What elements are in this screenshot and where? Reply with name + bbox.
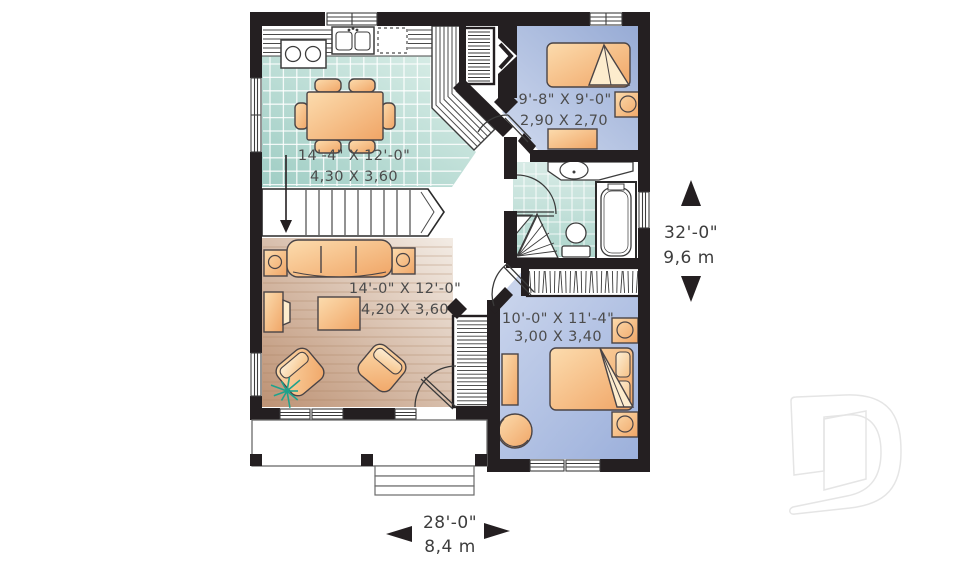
dining-chair (382, 103, 395, 129)
bedroom-1-size-metric: 2,90 X 2,70 (520, 113, 608, 129)
dining-chair (349, 79, 375, 92)
living-room-size-metric: 4,20 X 3,60 (361, 302, 449, 318)
window (639, 192, 649, 228)
depth-dimension: 32'-0" 9,6 m (663, 180, 718, 302)
dresser (502, 354, 518, 405)
porch-post (475, 454, 487, 466)
dining-chair (315, 79, 341, 92)
nightstand (612, 318, 638, 343)
arrow-right-icon (484, 523, 510, 539)
width-dimension: 28'-0" 8,4 m (386, 513, 510, 557)
living-room-size-imperial: 14'-0" X 12'-0" (349, 281, 461, 297)
floor-plan-svg: 14'-4" X 12'-0" 4,30 X 3,60 14'-0" X 12'… (0, 0, 960, 569)
arrow-down-icon (681, 276, 701, 302)
sofa (287, 240, 392, 277)
floor-plan-page: 14'-4" X 12'-0" 4,30 X 3,60 14'-0" X 12'… (0, 0, 960, 569)
closet-hatch (468, 32, 490, 81)
dresser (548, 129, 597, 149)
pillow (616, 352, 630, 377)
vanity-sink (560, 161, 588, 179)
bed (550, 348, 633, 410)
window (327, 13, 377, 25)
stove (281, 40, 326, 68)
tub-chair (498, 414, 532, 448)
drummond-logo (790, 395, 901, 514)
living-room-closet (453, 316, 492, 407)
side-table (392, 248, 415, 274)
dining-chair (295, 103, 308, 129)
bedroom-1-size-imperial: 9'-8" X 9'-0" (518, 92, 611, 108)
entry-closet (464, 28, 494, 84)
bedroom-2-closet (527, 268, 643, 296)
coffee-table (318, 297, 360, 330)
bathtub (596, 182, 636, 262)
bedroom-2-size-metric: 3,00 X 3,40 (514, 329, 602, 345)
kitchen-sink (332, 27, 374, 54)
kitchen-dining-size-imperial: 14'-4" X 12'-0" (298, 148, 410, 164)
bedroom-2-size-imperial: 10'-0" X 11'-4" (502, 311, 614, 327)
window (312, 409, 343, 419)
dining-table (307, 92, 383, 140)
arrow-up-icon (681, 180, 701, 206)
depth-imperial: 32'-0" (664, 223, 718, 243)
window (530, 460, 564, 471)
kitchen-dining-size-metric: 4,30 X 3,60 (310, 169, 398, 185)
nightstand (612, 412, 638, 437)
width-imperial: 28'-0" (423, 513, 477, 533)
porch-post (250, 454, 262, 466)
arrow-left-icon (386, 526, 412, 542)
window (251, 78, 261, 152)
porch-post (361, 454, 373, 466)
porch-steps (375, 466, 474, 495)
window (395, 409, 416, 419)
window (590, 13, 622, 25)
window (251, 353, 261, 396)
width-metric: 8,4 m (424, 537, 476, 557)
window (566, 460, 600, 471)
dishwasher (378, 28, 407, 53)
porch (250, 420, 487, 495)
window (280, 409, 310, 419)
bed (547, 43, 630, 87)
depth-metric: 9,6 m (663, 248, 715, 268)
nightstand (615, 92, 641, 117)
side-table (264, 250, 287, 276)
